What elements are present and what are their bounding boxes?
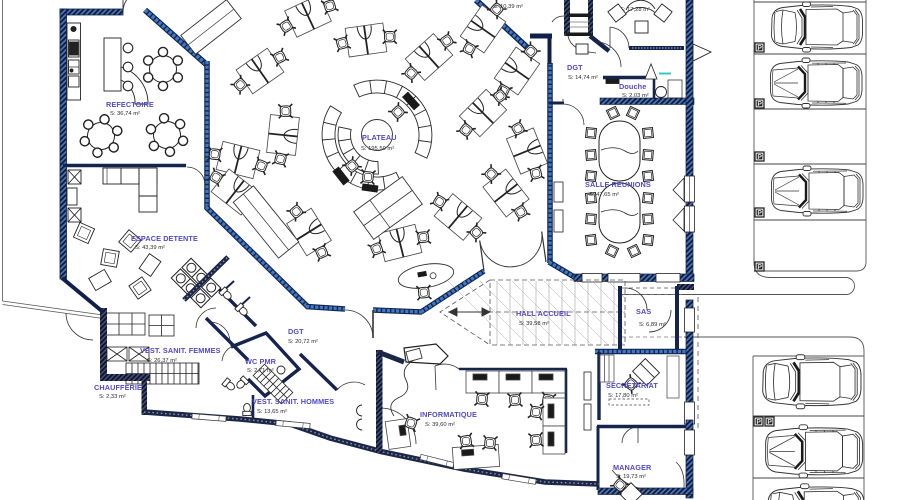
svg-text:DGT: DGT <box>288 327 304 336</box>
svg-text:S: 13,65 m²: S: 13,65 m² <box>257 409 287 415</box>
svg-text:S: 43,39 m²: S: 43,39 m² <box>135 245 165 251</box>
svg-text:S: 2,03 m²: S: 2,03 m² <box>622 93 649 99</box>
svg-text:CHAUFFERIE: CHAUFFERIE <box>94 383 142 392</box>
svg-text:S: 20,72 m²: S: 20,72 m² <box>288 339 318 345</box>
svg-text:Douche: Douche <box>619 82 646 91</box>
svg-text:S: 2,33 m²: S: 2,33 m² <box>99 394 126 400</box>
svg-text:MANAGER: MANAGER <box>613 463 652 472</box>
svg-text:DGT: DGT <box>567 63 583 72</box>
svg-text:VEST. SANIT. FEMMES: VEST. SANIT. FEMMES <box>140 346 221 355</box>
svg-text:S: 14,74 m²: S: 14,74 m² <box>568 75 598 81</box>
svg-text:S: 39,58 m²: S: 39,58 m² <box>519 321 549 327</box>
svg-text:S: 36,74 m²: S: 36,74 m² <box>110 111 140 117</box>
svg-text:S: 26,37 m²: S: 26,37 m² <box>147 358 177 364</box>
svg-text:REFECTOIRE: REFECTOIRE <box>106 100 154 109</box>
svg-text:SECRETARIAT: SECRETARIAT <box>606 381 658 390</box>
svg-text:ESPACE DETENTE: ESPACE DETENTE <box>131 234 198 243</box>
svg-text:S: 195,50 m²: S: 195,50 m² <box>361 146 394 152</box>
svg-text:SAS: SAS <box>636 307 651 316</box>
svg-text:S: 10,39 m²: S: 10,39 m² <box>493 4 523 10</box>
svg-text:VEST. SANIT. HOMMES: VEST. SANIT. HOMMES <box>252 397 334 406</box>
svg-text:S: 17,80 m²: S: 17,80 m² <box>608 393 638 399</box>
svg-text:PLATEAU: PLATEAU <box>362 133 397 142</box>
svg-text:INFORMATIQUE: INFORMATIQUE <box>420 410 477 419</box>
svg-text:WC PMR: WC PMR <box>245 357 277 366</box>
svg-text:HALL ACCUEIL: HALL ACCUEIL <box>516 309 571 318</box>
svg-text:SALLE REUNIONS: SALLE REUNIONS <box>585 180 651 189</box>
svg-text:S: 6,89 m²: S: 6,89 m² <box>639 322 666 328</box>
svg-text:S: 2,71 m²: S: 2,71 m² <box>247 368 274 374</box>
svg-text:S: 19,73 m²: S: 19,73 m² <box>616 474 646 480</box>
svg-text:S: 39,60 m²: S: 39,60 m² <box>425 422 455 428</box>
svg-text:S: 47,65 m²: S: 47,65 m² <box>589 192 619 198</box>
